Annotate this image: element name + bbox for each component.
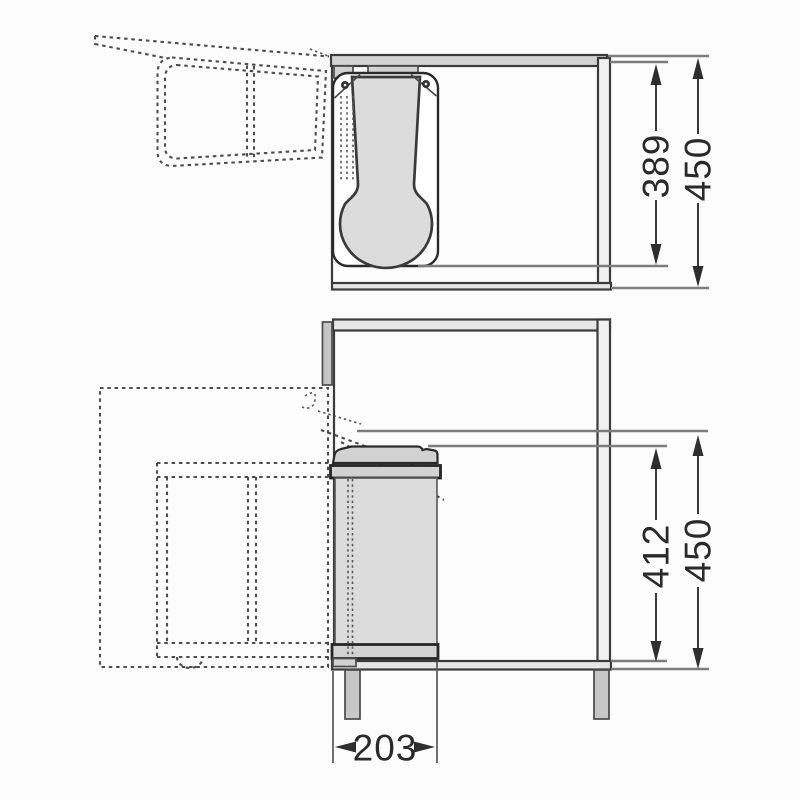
open-door-edge-dashed (95, 36, 329, 57)
open-door-outline-dashed (100, 388, 328, 667)
front-view: 412 450 203 (100, 320, 719, 769)
top-view: 389 450 (95, 36, 719, 290)
dim-label-bin-width: 203 (353, 728, 418, 769)
cabinet-top-panel (333, 320, 610, 331)
closed-door-slab (331, 55, 607, 66)
cabinet-right-panel (598, 320, 611, 670)
cabinet-bottom-panel (332, 661, 611, 670)
arrowhead-450t-bottom (693, 266, 704, 287)
front-view-bin (331, 447, 441, 667)
open-door-edge-profile (323, 322, 333, 385)
cabinet-back-panel (332, 283, 611, 290)
arrowhead-412-bottom (651, 641, 662, 662)
screw-right-center (425, 83, 428, 86)
cabinet-right-side (598, 58, 610, 285)
dim-label-cabinet-depth: 450 (678, 137, 719, 202)
dim-label-cabinet-height: 450 (678, 518, 719, 583)
bin-lid (333, 447, 438, 464)
arrowhead-412-top (651, 448, 662, 469)
arrowhead-450f-bottom (693, 648, 704, 669)
lid-lifter-arm-dashed (318, 411, 361, 424)
cabinet-leg-left (345, 670, 360, 719)
open-bin-outline-dashed (158, 58, 327, 167)
screw-left-center (344, 84, 347, 87)
bin-body (335, 478, 437, 645)
dim-label-bin-height: 412 (636, 524, 677, 589)
arrowhead-450t-top (693, 58, 704, 79)
bin-door-foot (333, 659, 356, 667)
arrowhead-389-bottom (651, 244, 662, 265)
arrowhead-389-top (651, 64, 662, 85)
dim-label-bin-depth: 389 (636, 134, 677, 199)
open-bin-inner-outline-dashed (165, 65, 318, 159)
open-door-inner-edge-dashed (95, 44, 163, 58)
cabinet-leg-right (594, 670, 609, 719)
lid-lifter-curl-dashed (302, 393, 315, 408)
bin-collar-ring (331, 466, 441, 479)
top-view-open-door-dashed (95, 36, 329, 166)
diagram-canvas: 389 450 (0, 0, 800, 800)
top-view-dimensions: 389 450 (418, 56, 719, 288)
technical-drawing-page: 389 450 (0, 0, 800, 800)
top-view-bin (333, 73, 438, 268)
hinge-swing-dashed (310, 49, 328, 56)
arrowhead-450f-top (693, 435, 704, 456)
